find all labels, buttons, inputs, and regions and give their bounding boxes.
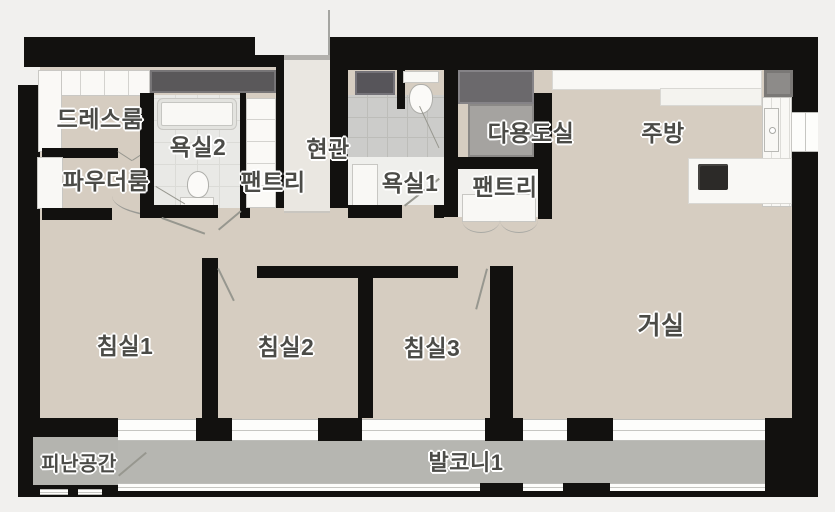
balcony-window-1 — [118, 419, 196, 441]
toilet1-tank — [403, 71, 439, 83]
evacuation-window-1 — [40, 489, 68, 495]
wall-bottom-edge — [118, 491, 818, 497]
bathtub — [157, 98, 237, 130]
room-label-bedroom1: 침실1 — [97, 327, 154, 361]
evacuation-window-2 — [78, 489, 102, 495]
wall-right-lower — [792, 152, 818, 418]
toilet2-bowl — [187, 171, 209, 198]
entrance-sill — [284, 55, 330, 60]
entrance-step-line — [284, 211, 330, 213]
balcony-window-4 — [613, 419, 765, 441]
balcony-door-window — [523, 419, 567, 441]
utility-appliance-dark — [458, 70, 534, 104]
room-label-bedroom2: 침실2 — [258, 328, 315, 362]
wall-top-left — [24, 37, 255, 67]
wall-top-step — [255, 55, 284, 67]
dressroom-wardrobe-top — [56, 70, 150, 96]
balcony-window-3 — [362, 419, 485, 441]
room-label-dress-room: 드레스룸 — [57, 100, 144, 134]
balcony-pier-4 — [567, 418, 613, 441]
wall-utility-left — [444, 67, 458, 217]
bath1-washbasin — [352, 164, 378, 206]
room-label-pantry1: 팬트리 — [241, 163, 306, 197]
balcony-pier-2 — [318, 418, 362, 441]
window-right — [792, 112, 818, 152]
wall-bed2-bed3 — [358, 266, 373, 418]
wall-top-right — [330, 37, 818, 70]
kitchen-counter-top — [552, 70, 762, 90]
kitchen-sink-drain — [769, 127, 776, 134]
wall-bath1-bottom-right — [434, 205, 444, 218]
bath1-storage-dark — [355, 71, 395, 95]
wall-bath1-bottom-left — [348, 205, 402, 218]
balcony-pier-3 — [485, 418, 523, 441]
room-label-evacuation-space: 피난공간 — [41, 448, 117, 477]
room-label-utility-room: 다용도실 — [488, 114, 575, 148]
room-label-bathroom2: 욕실2 — [170, 128, 227, 162]
room-label-balcony1: 발코니1 — [429, 445, 504, 477]
room-label-entrance: 현관 — [306, 130, 349, 164]
floor-plan: 드레스룸 파우더룸 욕실2 팬트리 현관 욕실1 다용도실 팬트리 주방 침실1… — [0, 0, 835, 512]
bath2-storage-dark — [150, 70, 276, 93]
wall-corner-bottom-right — [765, 418, 818, 497]
kitchen-cooktop — [698, 164, 728, 190]
powder-vanity — [37, 157, 63, 209]
wall-right-upper — [792, 70, 818, 112]
room-label-bedroom3: 침실3 — [404, 329, 461, 363]
entrance-outside-line — [328, 10, 330, 55]
room-label-kitchen: 주방 — [641, 114, 684, 148]
kitchen-counter-step — [660, 88, 762, 106]
wall-bed1-bed2 — [202, 258, 218, 418]
wall-bed2-top — [257, 266, 358, 278]
wall-bed3-right — [490, 266, 513, 418]
room-label-powder-room: 파우더룸 — [63, 162, 150, 196]
wall-bath2-bottom-left — [140, 205, 218, 218]
kitchen-hood — [764, 70, 793, 97]
wall-powder-bottom — [42, 208, 112, 220]
wall-left — [18, 85, 40, 418]
room-label-pantry2: 팬트리 — [473, 168, 538, 202]
room-label-living-room: 거실 — [637, 306, 684, 342]
wall-bed3-top — [373, 266, 458, 278]
room-label-bathroom1: 욕실1 — [382, 164, 439, 198]
wall-pantry2-right — [538, 157, 552, 219]
balcony-window-2 — [232, 419, 318, 441]
balcony-pier-1 — [196, 418, 232, 441]
